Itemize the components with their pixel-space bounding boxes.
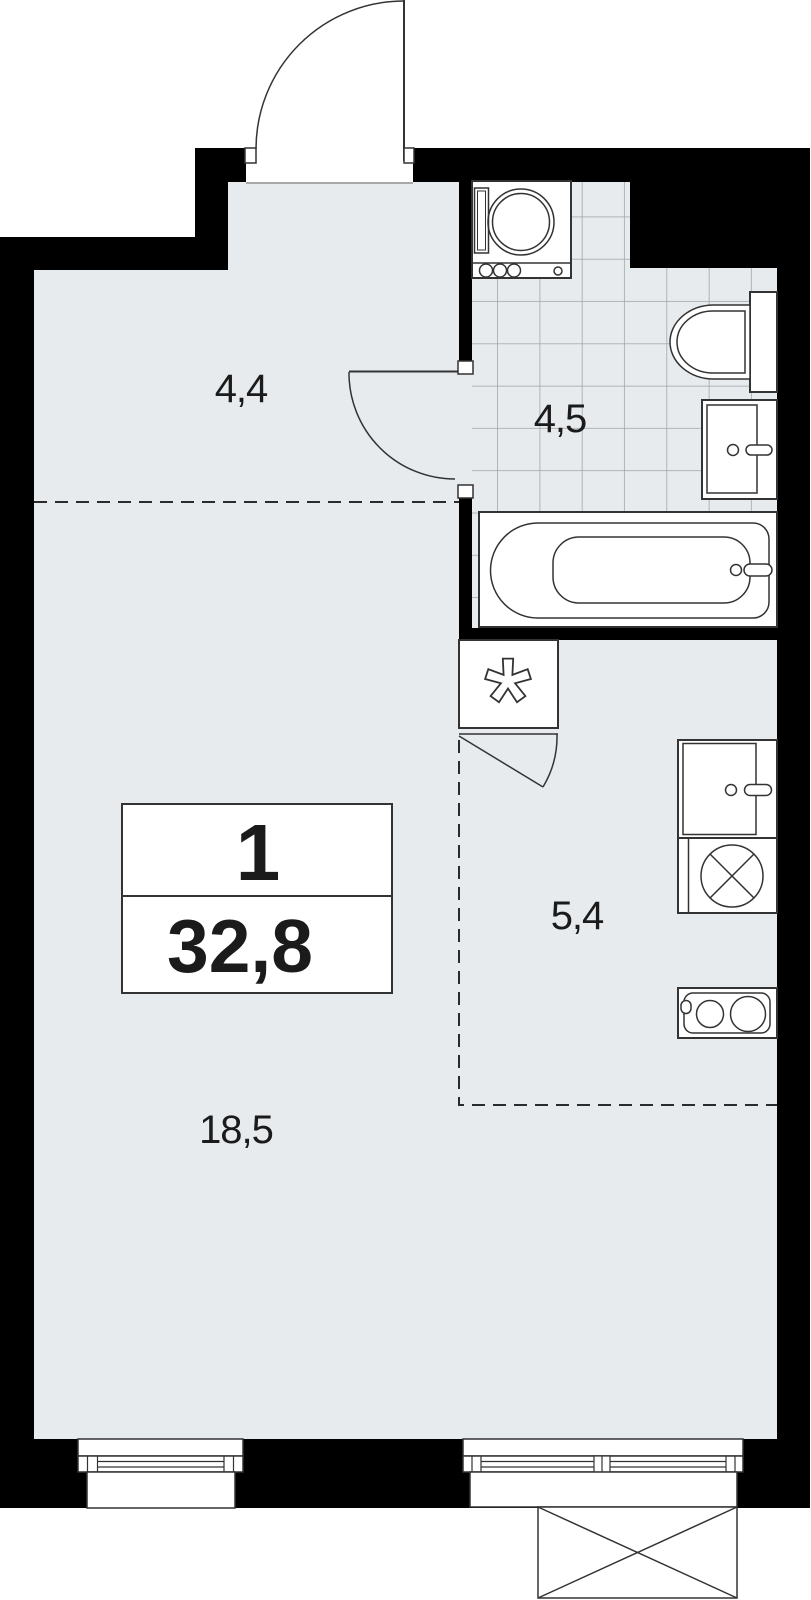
entrance-door-jamb-left [245,148,256,163]
washing-machine [472,181,571,278]
floor-plan: 4,4 4,5 5,4 18,5 1 32,8 [0,0,811,1600]
washing-machine-knob-2 [494,264,507,277]
wall-right [777,148,810,1508]
bathroom-door-opening [459,362,472,498]
hallway-area-label: 4,4 [215,367,268,411]
kitchen-sink-drain [726,785,737,796]
kitchen-area-label: 5,4 [551,894,604,938]
total-area-label: 32,8 [167,904,313,988]
wall-bath-divider-lower [459,498,472,628]
window-right [463,1439,743,1507]
cooktop [678,838,777,913]
wall-top-left [0,237,228,270]
bathroom-door-jamb-bottom [458,485,473,498]
window-left-opening [78,1439,243,1456]
washing-machine-button [554,267,562,275]
washbasin-drain [728,445,739,456]
entrance-door-jamb-right [404,148,414,163]
bathroom-area-label: 4,5 [534,397,587,441]
stove-body [678,988,777,1038]
bathtub [479,512,777,627]
washing-machine-knob-1 [480,264,493,277]
washing-machine-knob-3 [508,264,521,277]
bathtub-drain [731,565,742,576]
window-right-opening [463,1439,743,1456]
hallway-floor [228,182,459,270]
wall-left [0,270,34,1439]
wall-entrance-left [195,148,246,182]
cooktop-body [678,838,777,913]
rooms-count-label: 1 [236,808,281,897]
two-burner-stove [678,988,777,1038]
bathtub-faucet [744,564,772,576]
toilet-tank [750,292,777,392]
floor-plan-canvas: 4,4 4,5 5,4 18,5 1 32,8 [0,0,811,1600]
balcony-marker [538,1507,737,1598]
stove-knob [681,1001,691,1014]
wall-below-bathtub [459,628,777,640]
window-right-sill [470,1472,737,1507]
kitchen-sink-faucet [745,785,772,796]
window-left-frame [78,1456,243,1472]
window-left [78,1439,243,1508]
toilet-bowl-outer [670,305,750,379]
living-room-area-label: 18,5 [199,1108,273,1152]
kitchen-sink [678,740,777,838]
bathroom-door-jamb-top [458,361,473,374]
unit-summary-box: 1 32,8 [122,804,392,993]
washbasin-faucet [746,445,772,455]
washbasin [702,400,777,499]
window-left-sill [87,1472,235,1508]
wall-top-right-block [630,148,777,268]
wall-top-middle [413,148,630,182]
wall-bath-divider-upper [459,182,472,362]
